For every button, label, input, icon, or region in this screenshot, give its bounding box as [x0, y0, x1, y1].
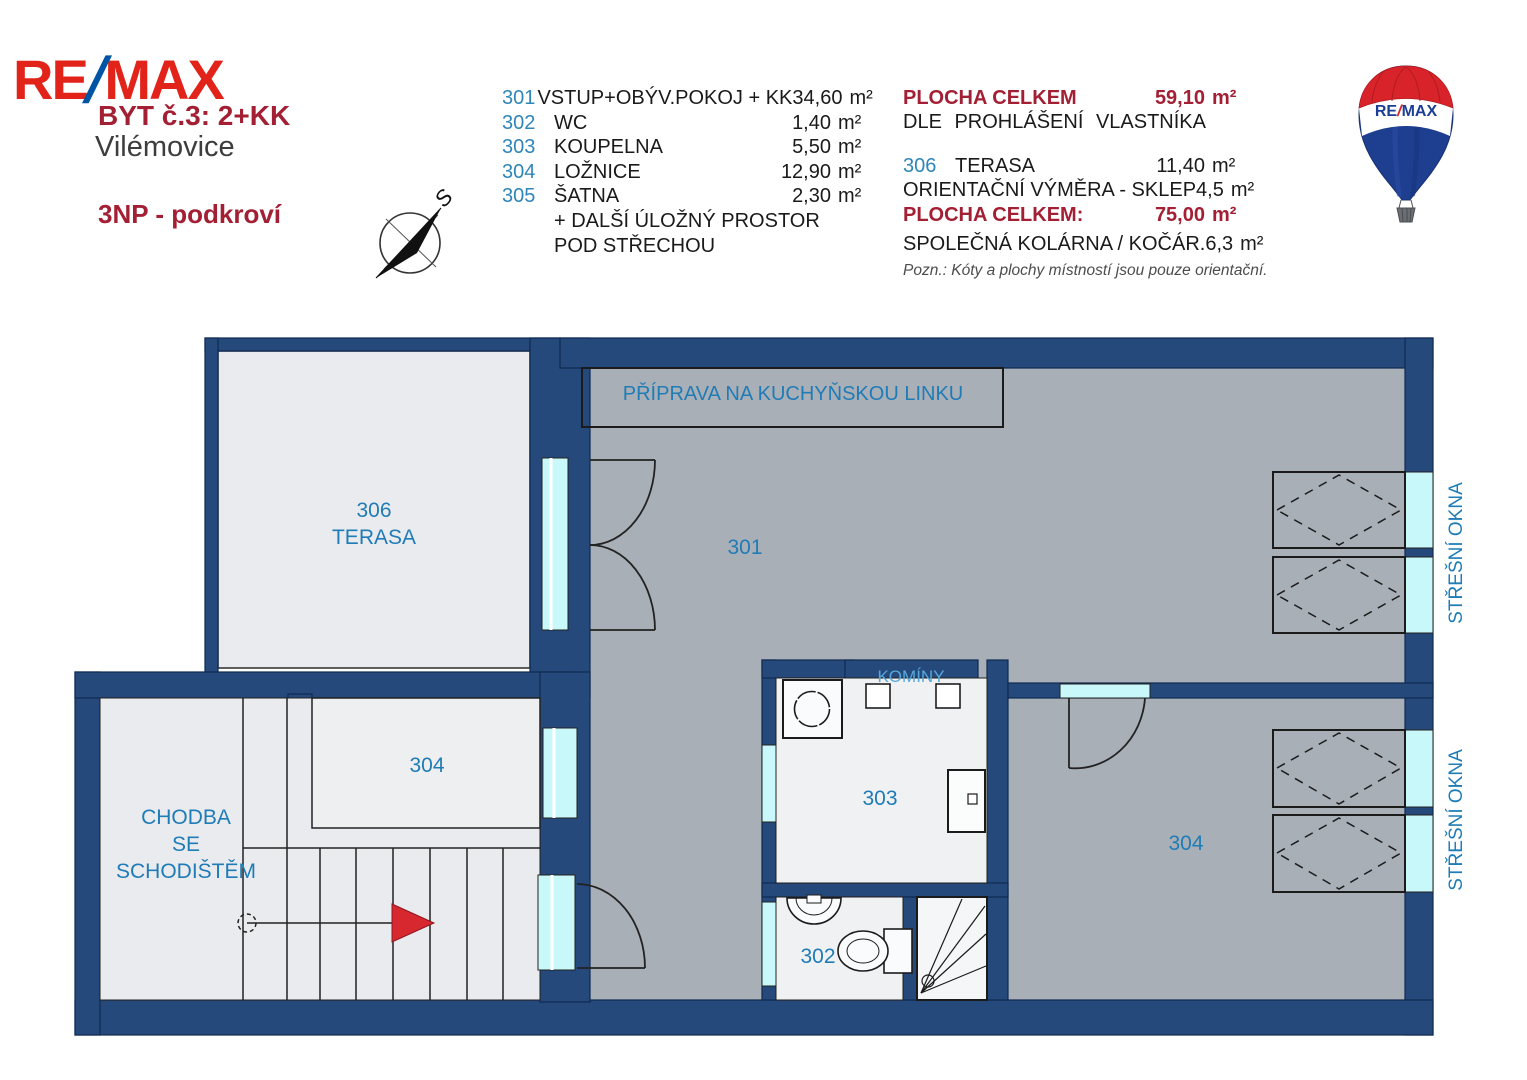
floorplan-drawing: 306 TERASA 301 304 304 303 302 CHODBA SE… [0, 0, 1527, 1080]
roof-window-glass [1405, 815, 1433, 892]
door-handle [968, 794, 977, 804]
roof-window-glass [1405, 730, 1433, 807]
closet-window-glass [543, 728, 577, 818]
chimney-flue [936, 684, 960, 708]
label-chimneys: KOMÍNY [877, 667, 944, 686]
terrace-door-glass [542, 458, 568, 630]
bath-window-glass [762, 745, 776, 822]
roof-window-glass [1405, 557, 1433, 633]
label-closet: 304 [409, 754, 444, 777]
label-hall-line1: CHODBA [141, 806, 231, 829]
label-kitchen-prep: PŘÍPRAVA NA KUCHYŇSKOU LINKU [623, 382, 963, 405]
roof-window-glass [1405, 472, 1433, 548]
label-bedroom: 304 [1168, 832, 1203, 855]
label-roof-windows-top: STŘEŠNÍ OKNA [1445, 482, 1467, 624]
toilet [838, 931, 888, 971]
chimney-flue [866, 684, 890, 708]
label-bath: 303 [862, 787, 897, 810]
label-hall-line3: SCHODIŠTĚM [116, 860, 256, 883]
label-wc: 302 [800, 945, 835, 968]
bedroom-door-opening [1060, 684, 1150, 698]
washing-machine [783, 680, 842, 738]
bath-door-leaf [948, 770, 985, 832]
label-living: 301 [727, 536, 762, 559]
wc-window-glass [762, 902, 776, 986]
label-hall-line2: SE [172, 833, 200, 856]
floorplan-page: RE/MAX BYT č.3: 2+KK Vilémovice 3NP - po… [0, 0, 1527, 1080]
label-terrace-name: TERASA [332, 526, 416, 549]
hall-door-glass [538, 875, 575, 970]
label-terrace-number: 306 [356, 499, 391, 522]
label-roof-windows-bottom: STŘEŠNÍ OKNA [1445, 749, 1467, 891]
